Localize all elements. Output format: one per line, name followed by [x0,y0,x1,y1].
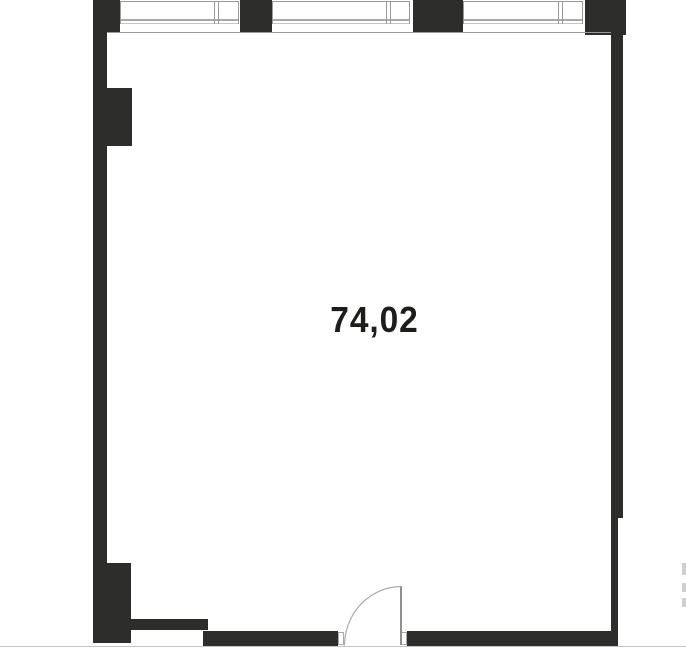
wall-right-lower [611,518,618,646]
window-1-edge-right [238,1,239,24]
cropped-neighbor-label-fragment [682,563,686,575]
room-area-label: 74,02 [293,298,456,342]
door-swing-arc-icon [343,585,403,647]
window-sill-line [107,32,611,33]
window-3-edge-right [582,1,583,24]
wall-bottom-right [407,631,618,646]
window-3-outer-line [463,1,583,2]
window-2-mullion-a [386,1,387,24]
window-1-outer-line [120,1,239,2]
window-3-glazing-line [463,23,583,24]
window-1-edge-left [120,1,121,24]
wall-right-upper [611,33,623,518]
window-3-mullion-a [558,1,559,24]
bottom-boundary-line [0,646,686,647]
window-1-mullion-a [214,1,215,24]
pillar-top-mid-1 [240,0,272,32]
window-1-frame-line [120,19,239,21]
window-2-mullion-b [390,1,391,24]
window-2-edge-right [409,1,410,24]
pilaster-left [93,88,132,146]
wall-bottom-mid [203,631,338,646]
pillar-top-right [585,0,626,35]
wall-bottom-thin [125,619,208,630]
column-bottom-left [93,563,131,643]
cropped-neighbor-label-fragment [682,583,686,592]
window-3-frame-line [463,19,583,21]
cropped-neighbor-label-fragment [682,598,686,607]
window-2-edge-left [272,1,273,24]
floor-plan: 74,02 [0,0,686,648]
window-3-mullion-b [562,1,563,24]
window-1-glazing-line [120,23,239,24]
window-1-mullion-b [218,1,219,24]
window-3-edge-left [463,1,464,24]
pillar-top-mid-2 [413,0,463,33]
